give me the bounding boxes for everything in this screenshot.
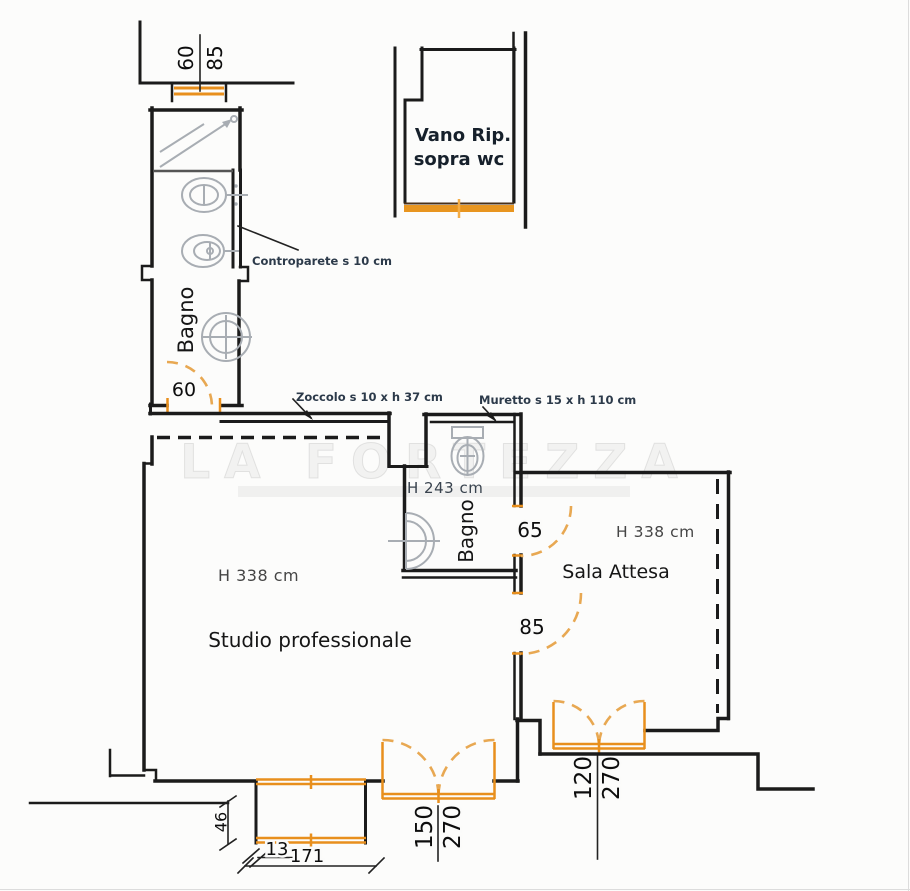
- door-60-label: 60: [172, 379, 196, 401]
- studio-height-label: H 338 cm: [218, 566, 299, 585]
- sala-height-label: H 338 cm: [616, 523, 695, 541]
- neighbor-wall-step: [110, 750, 144, 776]
- bidet-icon: [182, 235, 239, 267]
- door-60: 60: [167, 362, 220, 413]
- bay-width-dimension: 171: [238, 846, 384, 873]
- studio-label: Studio professionale: [208, 628, 412, 652]
- door-120-height-label: 270: [599, 756, 625, 800]
- vano-rip-label-line2: sopra wc: [414, 149, 505, 170]
- bay-width-label: 171: [290, 846, 324, 867]
- window-width-label: 60: [174, 45, 198, 70]
- door-65: 65: [512, 506, 571, 556]
- svg-text:Muretto s 15 x h 110 cm: Muretto s 15 x h 110 cm: [479, 393, 636, 407]
- window-height-label: 85: [203, 45, 227, 70]
- door-120-width-label: 120: [571, 756, 597, 800]
- sink-icon-2: [388, 513, 440, 569]
- sink-icon: [202, 313, 252, 361]
- bay-offset-label: 13: [266, 839, 289, 860]
- door-85: 85: [512, 593, 581, 654]
- door-150-width-label: 150: [412, 805, 438, 849]
- door-65-label: 65: [517, 518, 542, 542]
- svg-text:Controparete s 10 cm: Controparete s 10 cm: [252, 254, 392, 268]
- vano-rip-label-line1: Vano Rip.: [415, 125, 511, 146]
- door-85-label: 85: [519, 615, 544, 639]
- svg-text:Zoccolo s 10 x h 37 cm: Zoccolo s 10 x h 37 cm: [296, 390, 443, 404]
- toilet-icon: [182, 178, 248, 212]
- door-150x270: 150 270: [382, 740, 495, 861]
- bay-window: [256, 775, 366, 847]
- muretto-annotation: Muretto s 15 x h 110 cm: [479, 393, 636, 422]
- zoccolo-annotation: Zoccolo s 10 x h 37 cm: [293, 390, 443, 420]
- vano-rip-sill: [404, 199, 514, 218]
- door-120x270: 120 270: [553, 701, 645, 859]
- controparete-annotation: Controparete s 10 cm: [238, 226, 392, 268]
- sala-walls: [517, 472, 730, 731]
- floor-plan-drawing: LA FORTEZZA 60 85: [0, 0, 910, 891]
- floor-plan-page: LA FORTEZZA 60 85: [0, 0, 910, 891]
- bagno1-label: Bagno: [174, 287, 198, 354]
- bagno2-height-label: H 243 cm: [407, 479, 483, 497]
- sala-label: Sala Attesa: [562, 561, 669, 583]
- top-window: 60 85: [172, 35, 227, 101]
- bay-offset-dimension: 13: [243, 839, 292, 867]
- shower-icon: [160, 116, 237, 167]
- bagno2-label: Bagno: [454, 499, 478, 563]
- door-150-height-label: 270: [440, 805, 466, 849]
- bay-depth-label: 46: [212, 812, 231, 832]
